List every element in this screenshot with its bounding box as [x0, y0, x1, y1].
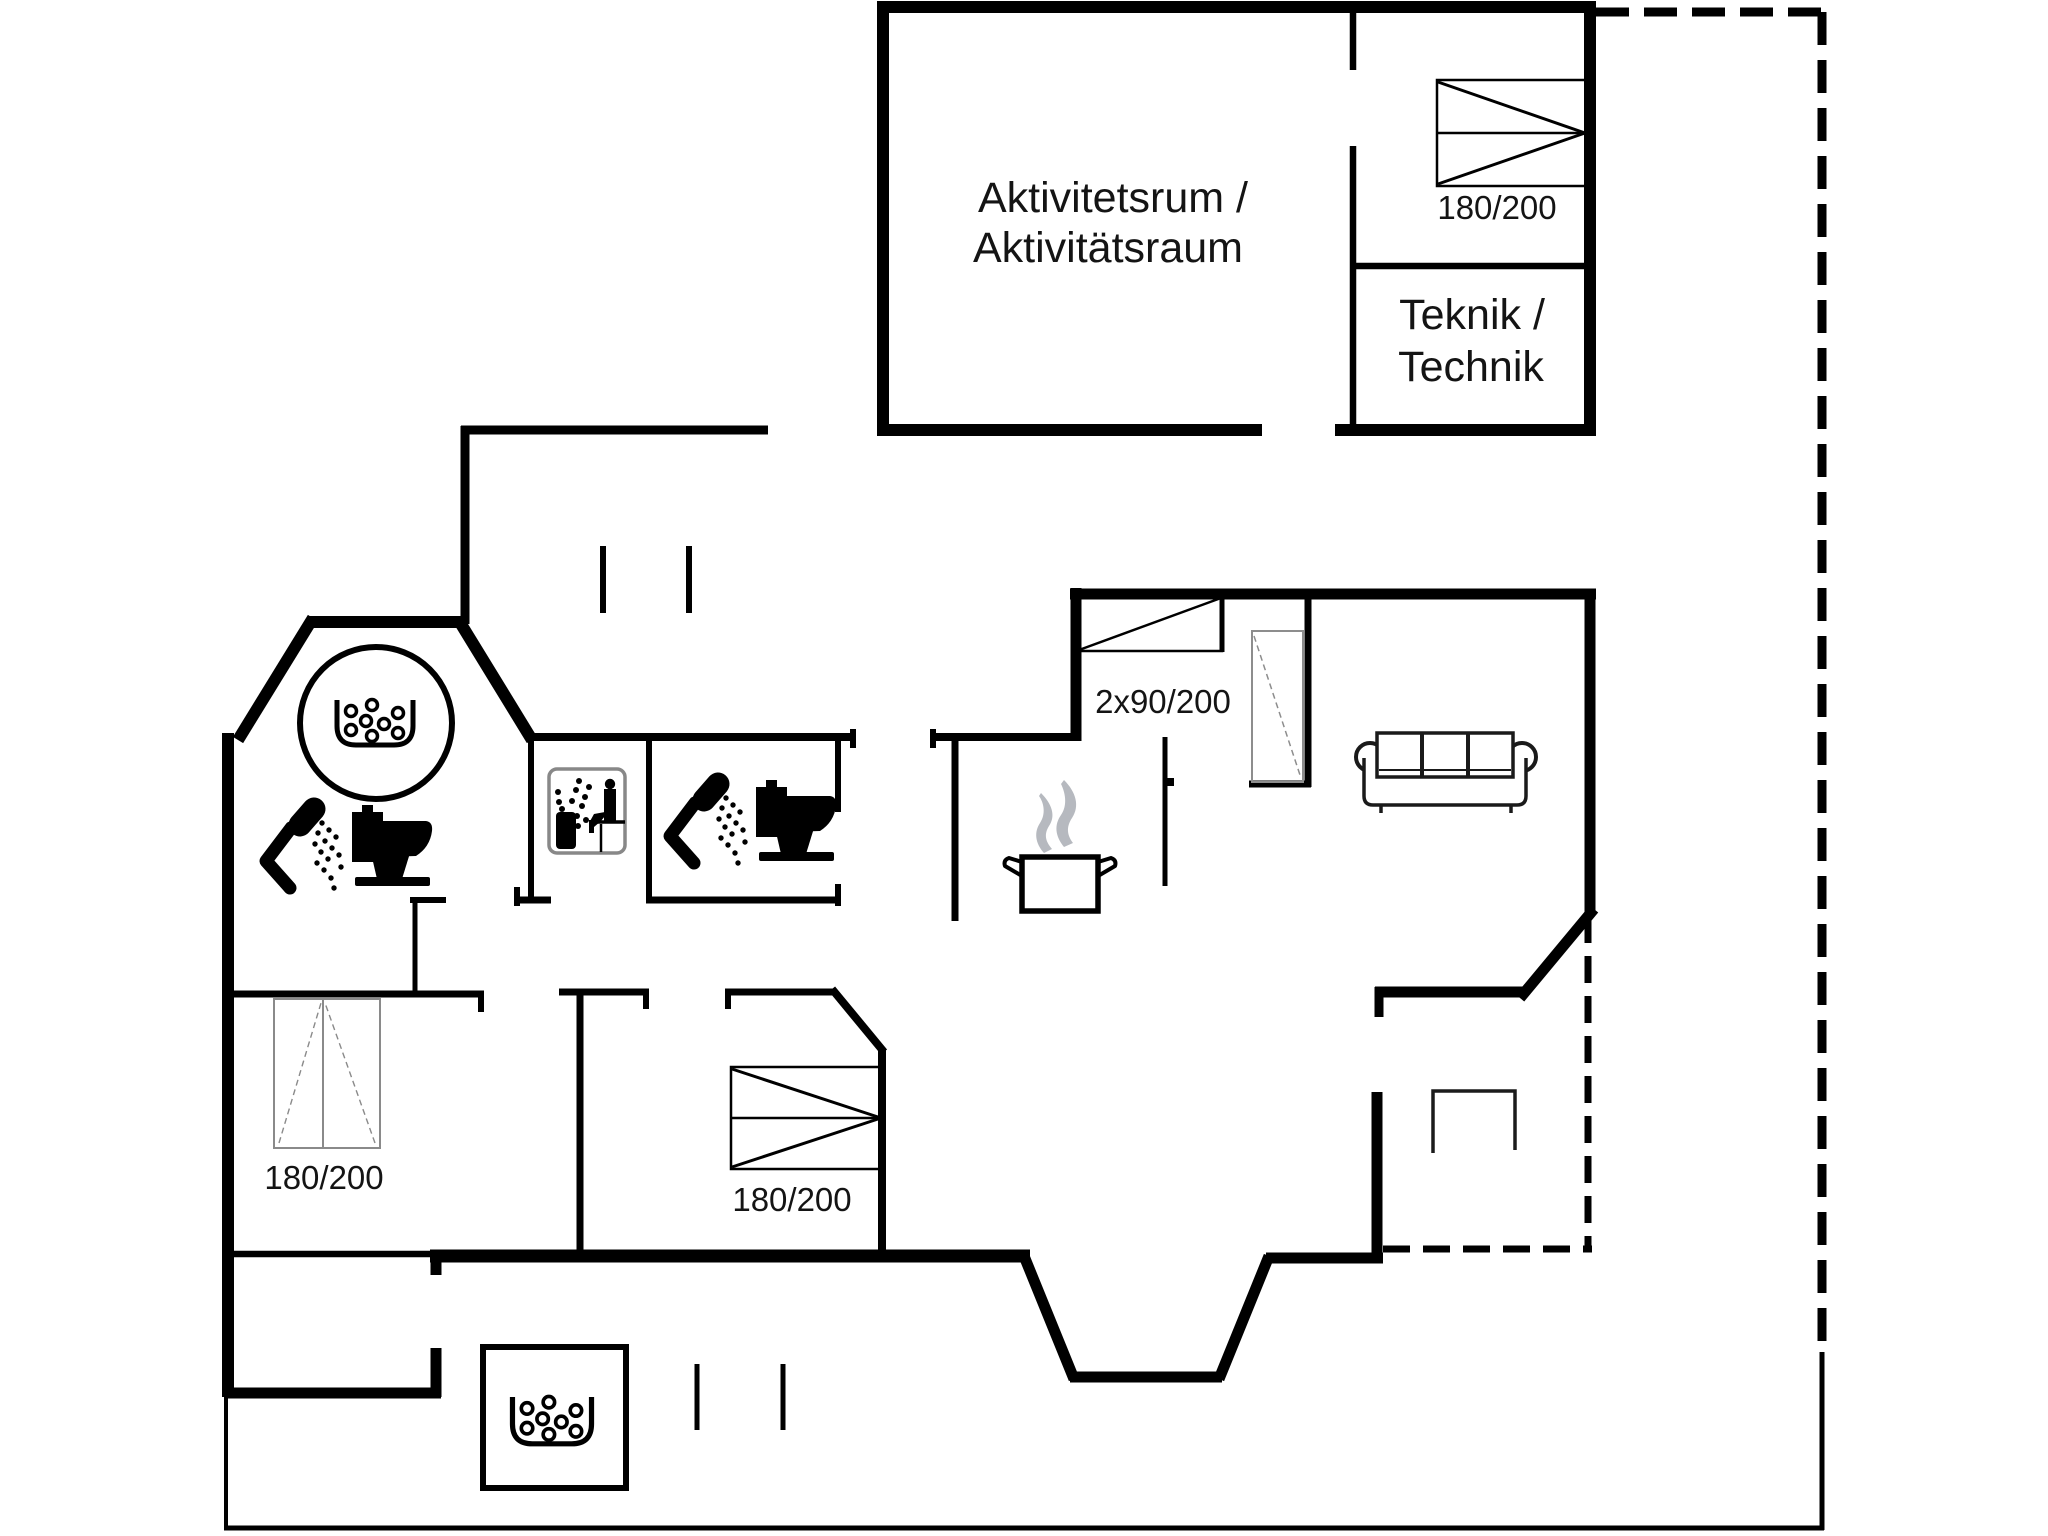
svg-text:180/200: 180/200 [264, 1159, 383, 1196]
svg-text:180/200: 180/200 [1437, 189, 1556, 226]
svg-text:Teknik /: Teknik / [1399, 291, 1545, 339]
svg-text:Aktivitetsrum /: Aktivitetsrum / [978, 174, 1248, 222]
svg-text:Aktivitätsraum: Aktivitätsraum [973, 224, 1243, 272]
svg-text:180/200: 180/200 [732, 1181, 851, 1218]
svg-text:Technik: Technik [1398, 343, 1544, 391]
svg-text:2x90/200: 2x90/200 [1095, 683, 1231, 720]
